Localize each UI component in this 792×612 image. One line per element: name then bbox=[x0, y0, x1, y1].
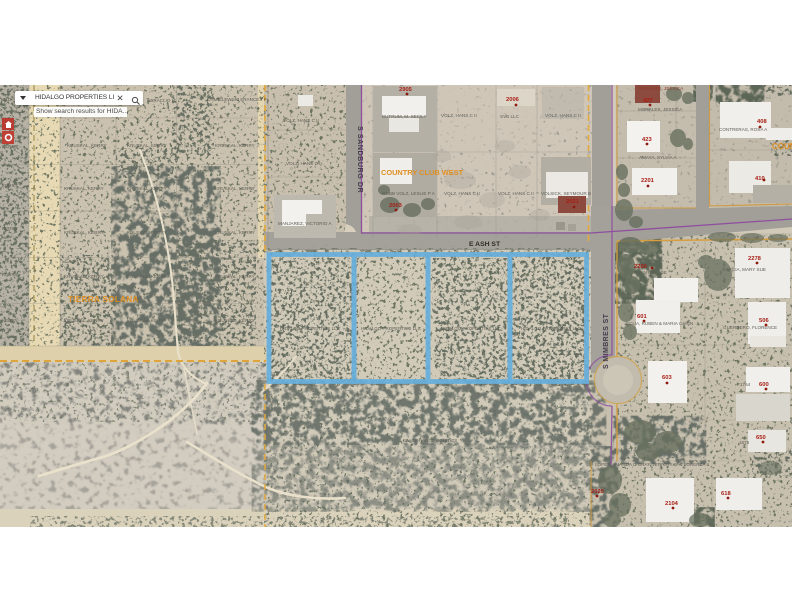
svg-text:GUERRERO, FLORENCE: GUERRERO, FLORENCE bbox=[723, 325, 777, 330]
svg-text:KRUSKAL, KERRY: KRUSKAL, KERRY bbox=[215, 274, 255, 279]
svg-text:601: 601 bbox=[637, 314, 647, 320]
svg-text:KRUSKAL, KERRY: KRUSKAL, KERRY bbox=[127, 274, 167, 279]
svg-text:VOLZ, HANS C II: VOLZ, HANS C II bbox=[498, 191, 534, 196]
svg-text:HIDALGO PROPERTIES LLC: HIDALGO PROPERTIES LLC bbox=[521, 326, 582, 331]
svg-text:COUNTRY CLUB WEST: COUNTRY CLUB WEST bbox=[381, 168, 464, 177]
svg-text:KRUSKAL, KERRY: KRUSKAL, KERRY bbox=[64, 186, 104, 191]
svg-text:HIDALGO PROPERTIES LLC: HIDALGO PROPERTIES LLC bbox=[280, 326, 341, 331]
svg-text:2278: 2278 bbox=[748, 256, 762, 262]
svg-text:618: 618 bbox=[721, 491, 731, 497]
svg-text:KERRY: KERRY bbox=[2, 183, 18, 188]
svg-text:ROBB VOLZ, LESLIE P A: ROBB VOLZ, LESLIE P A bbox=[382, 191, 436, 196]
svg-text:KERRY: KERRY bbox=[2, 144, 18, 149]
svg-text:408: 408 bbox=[757, 119, 767, 125]
svg-text:TIERRA SOLANA: TIERRA SOLANA bbox=[68, 295, 139, 304]
svg-text:HIDALGO PROPERTIES LLC: HIDALGO PROPERTIES LLC bbox=[361, 326, 422, 331]
svg-text:MORALES, JESSICA: MORALES, JESSICA bbox=[638, 107, 683, 112]
svg-text:S SANDBURG DR: S SANDBURG DR bbox=[356, 126, 365, 194]
svg-text:VOLZ, HANS C II: VOLZ, HANS C II bbox=[441, 113, 477, 118]
svg-text:HIDALGO PROPERTIES LLC: HIDALGO PROPERTIES LLC bbox=[441, 326, 502, 331]
svg-text:ECIJA, RUBEN & MARIA CARIN: ECIJA, RUBEN & MARIA CARIN bbox=[626, 321, 693, 326]
svg-text:NEVAREZ, JOE: NEVAREZ, JOE bbox=[634, 270, 667, 275]
svg-text:KRUSKAL, KERRY: KRUSKAL, KERRY bbox=[215, 318, 255, 323]
svg-text:VOLZ, HANS C II: VOLZ, HANS C II bbox=[545, 113, 581, 118]
svg-text:KRUSKAL, KERRY: KRUSKAL, KERRY bbox=[215, 143, 255, 148]
svg-text:600: 600 bbox=[759, 382, 769, 388]
svg-text:506: 506 bbox=[759, 318, 769, 324]
svg-text:S MIMBRES ST: S MIMBRES ST bbox=[603, 313, 610, 369]
svg-text:MANJAREZ, VICTORIO A: MANJAREZ, VICTORIO A bbox=[278, 221, 332, 226]
svg-text:2006: 2006 bbox=[506, 97, 520, 103]
svg-text:KRUSKAL, KERRY: KRUSKAL, KERRY bbox=[127, 230, 167, 235]
svg-text:HERACLIO L: HERACLIO L bbox=[147, 98, 175, 103]
svg-text:VOLZ, HANS C II: VOLZ, HANS C II bbox=[286, 161, 322, 166]
svg-text:BUTRUM, M. SECILY: BUTRUM, M. SECILY bbox=[382, 114, 427, 119]
svg-text:MORALES, JESSICA: MORALES, JESSICA bbox=[639, 86, 684, 91]
svg-text:KRUSKAL, KERRY: KRUSKAL, KERRY bbox=[67, 143, 107, 148]
svg-text:KRUSKAL, KERRY: KRUSKAL, KERRY bbox=[64, 274, 104, 279]
svg-text:603: 603 bbox=[662, 375, 672, 381]
svg-text:1764: 1764 bbox=[740, 382, 751, 387]
svg-text:423: 423 bbox=[642, 137, 652, 143]
svg-text:SVB LLC: SVB LLC bbox=[500, 114, 520, 119]
svg-text:VOLSICK, SEYMOUR B: VOLSICK, SEYMOUR B bbox=[541, 191, 591, 196]
svg-text:KRUSKAL, KERRY: KRUSKAL, KERRY bbox=[127, 143, 167, 148]
svg-text:KRU: KRU bbox=[1, 97, 12, 103]
svg-text:KRUSKAL, KERRY: KRUSKAL, KERRY bbox=[64, 318, 104, 323]
svg-text:KRUSKAL, KERRY: KRUSKAL, KERRY bbox=[215, 230, 255, 235]
svg-text:BLACK RANGE EQUITIES: BLACK RANGE EQUITIES bbox=[403, 438, 457, 443]
svg-text:2201: 2201 bbox=[641, 178, 655, 184]
svg-text:VOLZ, HANS C II: VOLZ, HANS C II bbox=[444, 191, 480, 196]
svg-text:650: 650 bbox=[756, 435, 766, 441]
svg-text:COUN: COUN bbox=[772, 142, 792, 151]
svg-text:KRUSKAL, KERRY: KRUSKAL, KERRY bbox=[127, 186, 167, 191]
svg-text:2020: 2020 bbox=[591, 489, 604, 495]
svg-text:2003: 2003 bbox=[389, 203, 403, 209]
svg-text:2200: 2200 bbox=[634, 264, 647, 270]
svg-text:KERRY: KERRY bbox=[2, 226, 18, 231]
svg-text:427: 427 bbox=[643, 98, 653, 104]
svg-text:VOLZ, HANS C II: VOLZ, HANS C II bbox=[283, 118, 319, 123]
svg-text:KRUSKAL, KERRY: KRUSKAL, KERRY bbox=[215, 186, 255, 191]
svg-text:2104: 2104 bbox=[665, 501, 679, 507]
svg-text:E ASH ST: E ASH ST bbox=[469, 241, 501, 248]
svg-text:LOPEZ, AMANDA D GRAY, JEFFERY: LOPEZ, AMANDA D GRAY, JEFFERY W & LORENZ… bbox=[595, 462, 710, 467]
svg-text:2905: 2905 bbox=[399, 87, 413, 93]
svg-text:1678: 1678 bbox=[739, 440, 750, 445]
svg-text:CHMIELEWSKI FRANCES P: CHMIELEWSKI FRANCES P bbox=[207, 97, 267, 102]
svg-text:KERRY: KERRY bbox=[2, 318, 18, 323]
svg-text:KRUSKAL, KERRY: KRUSKAL, KERRY bbox=[64, 230, 104, 235]
svg-text:2021: 2021 bbox=[566, 199, 580, 205]
svg-text:KERRY: KERRY bbox=[2, 272, 18, 277]
svg-text:GARCIA, MARY SUE: GARCIA, MARY SUE bbox=[722, 267, 766, 272]
svg-text:KRUSKAL, KERRY: KRUSKAL, KERRY bbox=[127, 318, 167, 323]
svg-text:AMAYA, SYLVIA A: AMAYA, SYLVIA A bbox=[639, 155, 677, 160]
